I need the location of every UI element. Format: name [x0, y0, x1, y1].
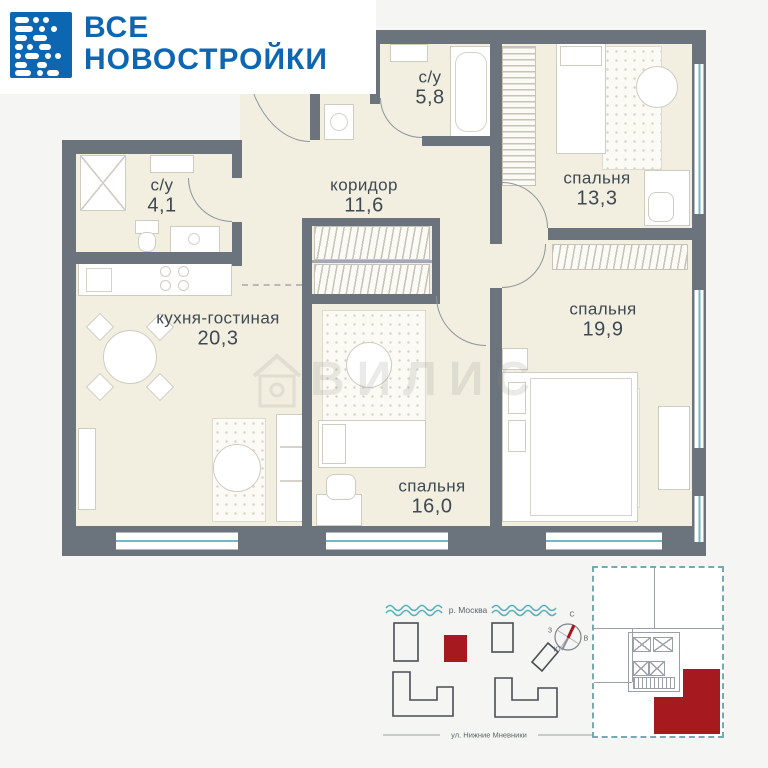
toilet-bowl-icon	[138, 232, 156, 252]
console-table	[658, 406, 690, 490]
wall	[232, 140, 242, 178]
room-area: 11,6	[330, 194, 398, 216]
site-building	[495, 678, 557, 717]
site-building	[492, 623, 513, 652]
stove-burner-icon	[160, 266, 171, 277]
window	[326, 532, 448, 550]
site-building-highlighted	[444, 635, 467, 662]
wall	[548, 228, 692, 240]
window	[694, 64, 704, 214]
bed-pillow	[508, 420, 526, 452]
washing-machine-drum-icon	[330, 113, 348, 131]
logo-text-line1: ВСЕ	[84, 12, 328, 44]
wall-divider	[310, 260, 440, 263]
wall	[62, 140, 76, 556]
room-label-bedroom-16: спальня 16,0	[398, 476, 465, 517]
room-name: кухня-гостиная	[156, 308, 280, 327]
washbasin-icon	[390, 44, 428, 62]
window	[694, 496, 704, 542]
site-building	[393, 672, 453, 716]
compass-south-label: Ю	[553, 647, 560, 654]
room-name: спальня	[398, 476, 465, 495]
river-label: р. Москва	[449, 605, 487, 615]
street-label: ул. Нижние Мневники	[451, 731, 527, 740]
room-label-bathroom-41: с/у 4,1	[147, 175, 176, 216]
minimap-wall	[594, 682, 632, 683]
wall	[310, 294, 440, 304]
closet-corridor	[314, 226, 430, 260]
window	[694, 290, 704, 448]
wall	[62, 140, 240, 154]
logo-mark-icon	[10, 12, 72, 78]
wall	[490, 30, 502, 244]
room-area: 20,3	[156, 327, 280, 349]
shower-icon	[80, 155, 126, 211]
wall	[422, 136, 492, 146]
minimap-wall	[594, 628, 722, 629]
room-name: спальня	[569, 299, 636, 318]
bed-pillow	[322, 424, 346, 464]
wall	[432, 218, 440, 304]
elevator-icon	[633, 637, 651, 652]
sink-basin-icon	[188, 233, 200, 245]
zone-boundary-dashed	[242, 284, 302, 286]
window	[546, 532, 662, 550]
tv-stand	[78, 428, 96, 510]
sofa-cushion-line	[280, 446, 302, 448]
minimap-wall	[654, 568, 655, 628]
room-name: коридор	[330, 175, 398, 194]
compass-west-label: З	[548, 628, 552, 635]
coffee-table	[213, 444, 261, 492]
room-label-corridor: коридор 11,6	[330, 175, 398, 216]
watermark-text: ВИЛИС	[310, 352, 542, 407]
stairs-icon	[633, 677, 675, 689]
wardrobe-bedroom-19	[552, 244, 688, 270]
window	[116, 532, 238, 550]
site-building	[394, 623, 418, 661]
room-area: 5,8	[415, 86, 444, 108]
logo-text-line2: НОВОСТРОЙКИ	[84, 44, 328, 76]
closet-bedroom-16	[314, 264, 430, 296]
dining-table	[103, 330, 157, 384]
watermark-house-icon	[248, 350, 306, 412]
rug-bedroom-13	[602, 46, 662, 170]
logo-text: ВСЕ НОВОСТРОЙКИ	[84, 12, 328, 76]
room-label-bathroom-58: с/у 5,8	[415, 67, 444, 108]
bathtub-inner-icon	[455, 52, 487, 132]
minimap-core	[628, 632, 680, 692]
room-area: 19,9	[569, 318, 636, 340]
pouf-table	[636, 66, 678, 108]
desk-chair	[326, 474, 356, 500]
wall	[62, 252, 240, 264]
elevator-icon	[653, 637, 673, 652]
compass-north-label: С	[569, 612, 574, 619]
room-area: 13,3	[563, 187, 630, 209]
compass-east-label: В	[584, 636, 589, 643]
stove-burner-icon	[178, 280, 189, 291]
floor-minimap	[592, 566, 724, 738]
stove-burner-icon	[160, 280, 171, 291]
stove-burner-icon	[178, 266, 189, 277]
desk-chair	[648, 192, 674, 222]
bathroom-shelf	[150, 155, 194, 173]
room-area: 16,0	[398, 495, 465, 517]
wall	[310, 218, 440, 226]
logo: ВСЕ НОВОСТРОЙКИ	[0, 0, 376, 94]
kitchen-sink-icon	[86, 268, 112, 292]
room-area: 4,1	[147, 194, 176, 216]
bed-pillow	[560, 46, 602, 66]
room-label-bedroom-13: спальня 13,3	[563, 168, 630, 209]
room-name: с/у	[147, 175, 176, 194]
room-name: с/у	[415, 67, 444, 86]
wardrobe-bedroom-13	[502, 46, 536, 186]
elevator-icon	[649, 661, 665, 676]
elevator-icon	[633, 661, 649, 676]
room-name: спальня	[563, 168, 630, 187]
bed-mattress-line	[530, 378, 632, 516]
floorplan-page: с/у 4,1 с/у 5,8 коридор 11,6 спальня 13,…	[0, 0, 768, 768]
wall	[490, 288, 502, 528]
sofa-cushion-line	[280, 480, 302, 482]
room-label-kitchen-living: кухня-гостиная 20,3	[156, 308, 280, 349]
room-label-bedroom-19: спальня 19,9	[569, 299, 636, 340]
